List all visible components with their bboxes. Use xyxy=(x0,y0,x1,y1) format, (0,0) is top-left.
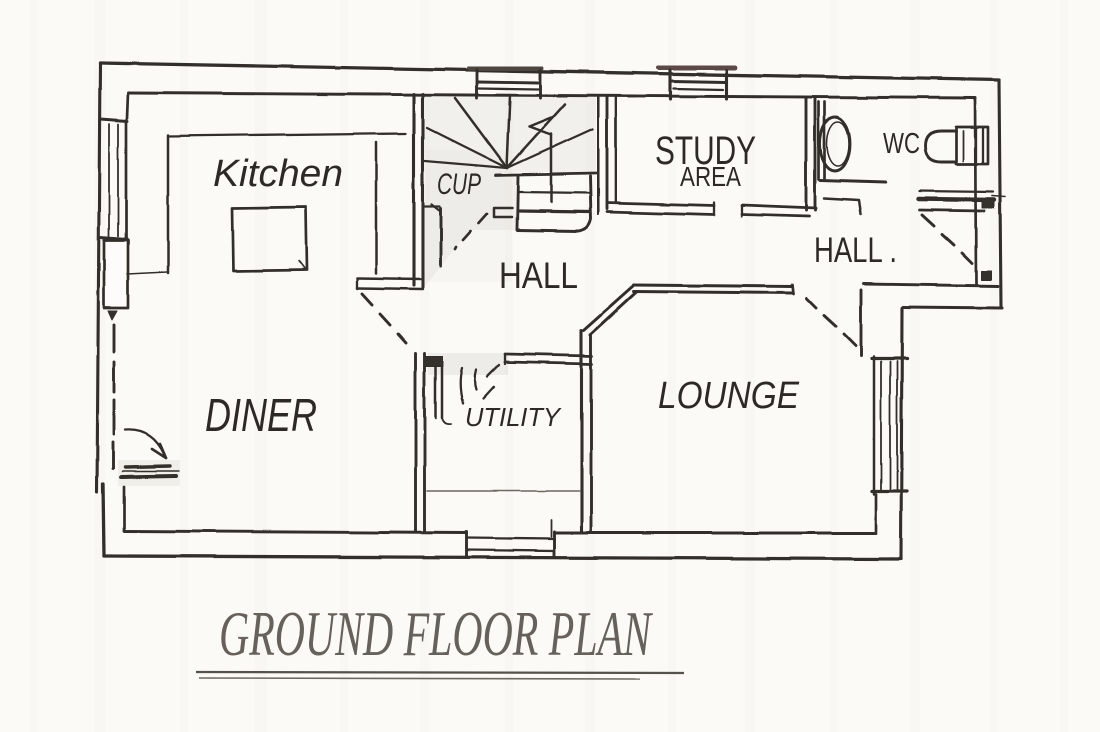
svg-text:GROUND FLOOR PLAN: GROUND FLOOR PLAN xyxy=(219,598,653,669)
svg-text:LOUNGE: LOUNGE xyxy=(658,375,800,417)
svg-text:DINER: DINER xyxy=(205,389,317,441)
svg-text:AREA: AREA xyxy=(680,161,741,192)
svg-text:UTILITY: UTILITY xyxy=(465,402,562,432)
svg-text:HALL .: HALL . xyxy=(814,231,897,270)
svg-text:CUP: CUP xyxy=(437,168,481,201)
svg-text:Kitchen: Kitchen xyxy=(213,153,343,195)
svg-text:HALL: HALL xyxy=(499,255,578,296)
svg-text:WC: WC xyxy=(883,128,920,160)
